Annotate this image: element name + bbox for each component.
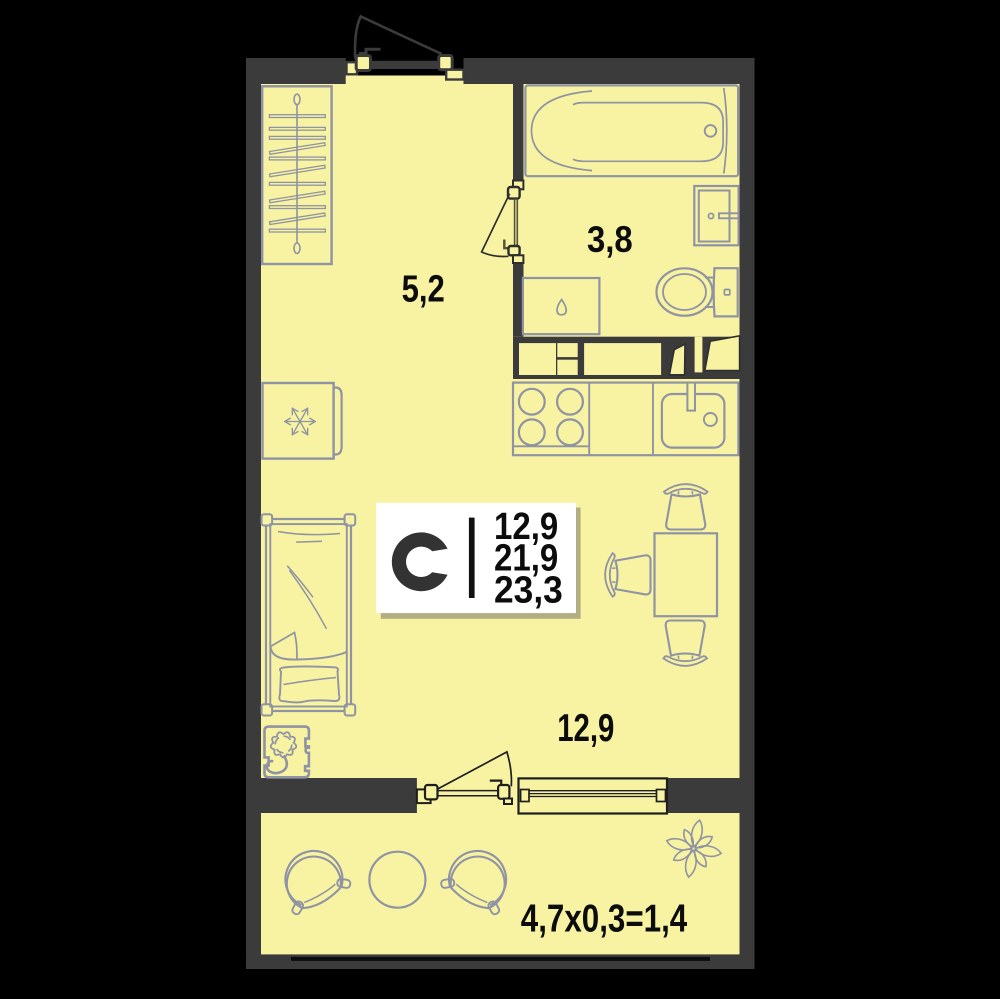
svg-text:4,7х0,3=1,4: 4,7х0,3=1,4 [521,897,688,940]
svg-text:3,8: 3,8 [587,219,633,260]
svg-text:5,2: 5,2 [402,268,445,311]
svg-text:23,3: 23,3 [494,569,563,611]
svg-text:12,9: 12,9 [557,707,614,750]
